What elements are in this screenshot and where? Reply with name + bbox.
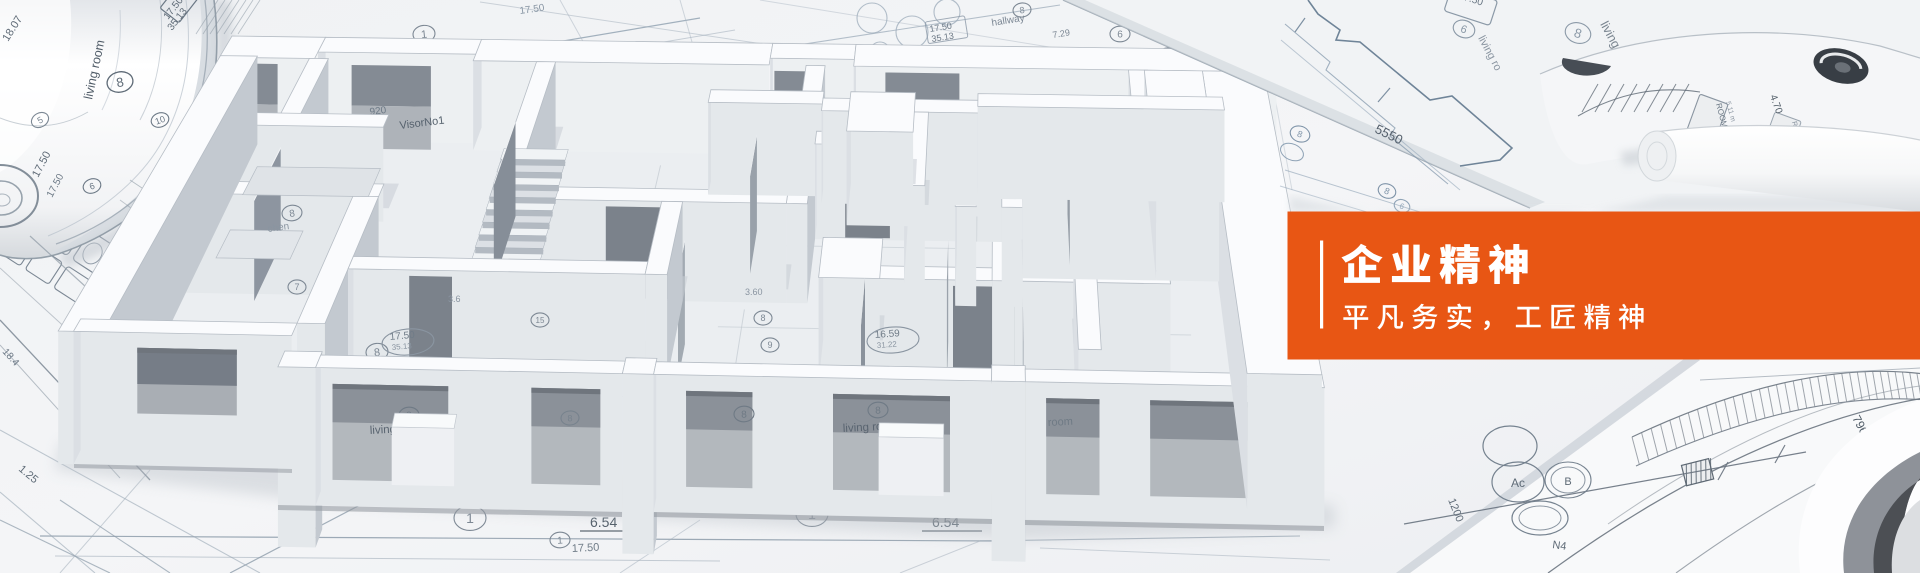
svg-text:8: 8 xyxy=(875,405,882,416)
svg-text:35.13: 35.13 xyxy=(391,341,412,352)
svg-text:room: room xyxy=(1048,416,1074,429)
svg-text:31.22: 31.22 xyxy=(877,340,898,350)
svg-text:16.59: 16.59 xyxy=(874,328,900,341)
svg-text:1: 1 xyxy=(557,535,564,546)
svg-text:9: 9 xyxy=(767,340,772,350)
svg-text:Ac: Ac xyxy=(1511,476,1525,490)
svg-text:3.6: 3.6 xyxy=(448,294,461,304)
svg-text:8: 8 xyxy=(760,313,765,323)
svg-text:B: B xyxy=(1564,476,1571,488)
svg-text:3.60: 3.60 xyxy=(745,287,763,297)
svg-text:17.50: 17.50 xyxy=(572,542,600,555)
svg-text:N4: N4 xyxy=(1552,539,1568,553)
svg-text:17.50: 17.50 xyxy=(389,330,415,343)
svg-text:8: 8 xyxy=(741,409,748,420)
svg-text:6: 6 xyxy=(1117,30,1123,41)
svg-text:15: 15 xyxy=(536,316,545,325)
svg-text:8: 8 xyxy=(567,413,573,423)
svg-text:7: 7 xyxy=(294,282,299,292)
